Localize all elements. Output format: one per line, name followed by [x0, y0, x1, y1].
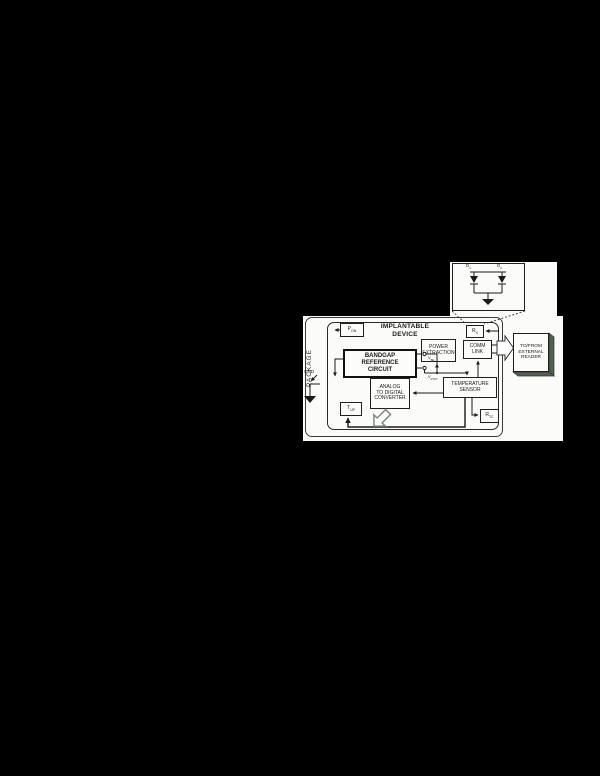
external-reader-box: TO/FROM EXTERNAL READER — [513, 333, 549, 372]
callout-d1-label: D1 — [466, 263, 471, 268]
callout-d2-sub: 2 — [500, 266, 502, 270]
port-rx-box: RX — [466, 325, 484, 338]
port-tup-box: TUP — [340, 402, 362, 416]
comm-line2: LINK — [472, 350, 483, 356]
callout-d1-sub: 1 — [469, 266, 471, 270]
comm-link-box: COMM LINK — [463, 340, 492, 359]
rtc-sub: TC — [489, 415, 494, 419]
signal-vptat-label: VPTAT — [428, 374, 437, 379]
bandgap-line3: CIRCUIT — [368, 367, 392, 374]
device-title: IMPLANTABLE DEVICE — [358, 323, 452, 339]
port-tup-label: TUP — [347, 406, 355, 412]
package-label: PACKAGE — [306, 327, 313, 387]
bandgap-line2: REFERENCE — [361, 360, 398, 367]
callout-d2-label: D2 — [497, 263, 502, 268]
temp-line2: SENSOR — [459, 388, 480, 394]
port-rx-label: RX — [472, 329, 478, 335]
port-pon-box: PON — [340, 323, 364, 337]
reader-line3: READER — [521, 355, 541, 361]
vptat-sub: PTAT — [431, 377, 438, 381]
port-rtc-box: RTC — [480, 409, 499, 423]
temperature-sensor-box: TEMPERATURE SENSOR — [443, 377, 497, 398]
gnd-label: GND — [304, 369, 314, 374]
adc-box: ANALOG TO DIGITAL CONVERTER — [370, 378, 410, 409]
page: PACKAGE IMPLANTABLE DEVICE D1 D2 PON RX … — [0, 0, 600, 776]
vbe-sub: BE — [431, 358, 435, 362]
signal-vbe-label: VBE — [428, 355, 434, 360]
tup-sub: UP — [350, 408, 355, 412]
adc-line3: CONVERTER — [374, 396, 405, 402]
bandgap-reference-box: BANDGAP REFERENCE CIRCUIT — [343, 349, 417, 378]
bandgap-line1: BANDGAP — [365, 353, 395, 360]
port-rtc-label: RTC — [485, 413, 493, 419]
device-title-line2: DEVICE — [392, 331, 417, 338]
callout-box — [452, 263, 525, 311]
pon-sub: ON — [351, 329, 356, 333]
port-pon-label: PON — [348, 327, 357, 333]
device-title-line1: IMPLANTABLE — [381, 323, 429, 330]
power-extraction-box: POWER EXTRACTION — [421, 339, 456, 362]
rx-sub: X — [476, 331, 478, 335]
